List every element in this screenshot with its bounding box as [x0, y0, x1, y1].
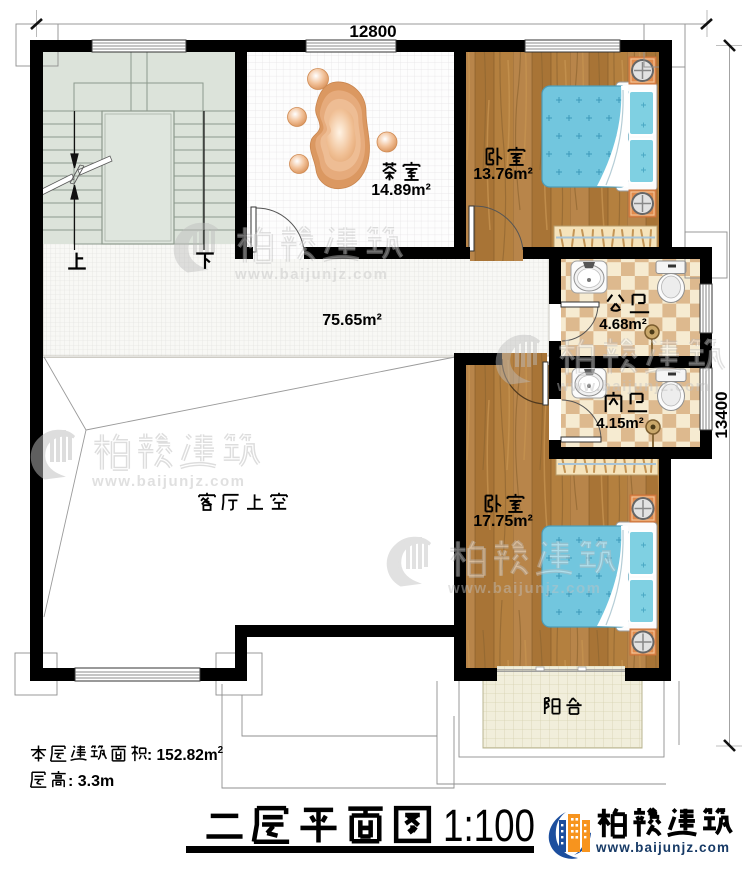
- svg-text:14.89m²: 14.89m²: [371, 182, 431, 199]
- svg-text:12800: 12800: [349, 22, 396, 41]
- svg-text:4.15m²: 4.15m²: [596, 415, 644, 432]
- svg-text:: 3.3m: : 3.3m: [68, 773, 114, 790]
- svg-text:1:100: 1:100: [443, 800, 535, 851]
- svg-text:17.75m²: 17.75m²: [473, 513, 533, 530]
- svg-text:: 152.82m2: : 152.82m2: [147, 745, 224, 764]
- svg-text:13400: 13400: [712, 391, 731, 438]
- svg-text:4.68m²: 4.68m²: [599, 316, 647, 333]
- svg-text:www.baijunjz.com: www.baijunjz.com: [595, 840, 730, 855]
- svg-text:75.65m²: 75.65m²: [322, 312, 382, 329]
- svg-text:13.76m²: 13.76m²: [473, 166, 533, 183]
